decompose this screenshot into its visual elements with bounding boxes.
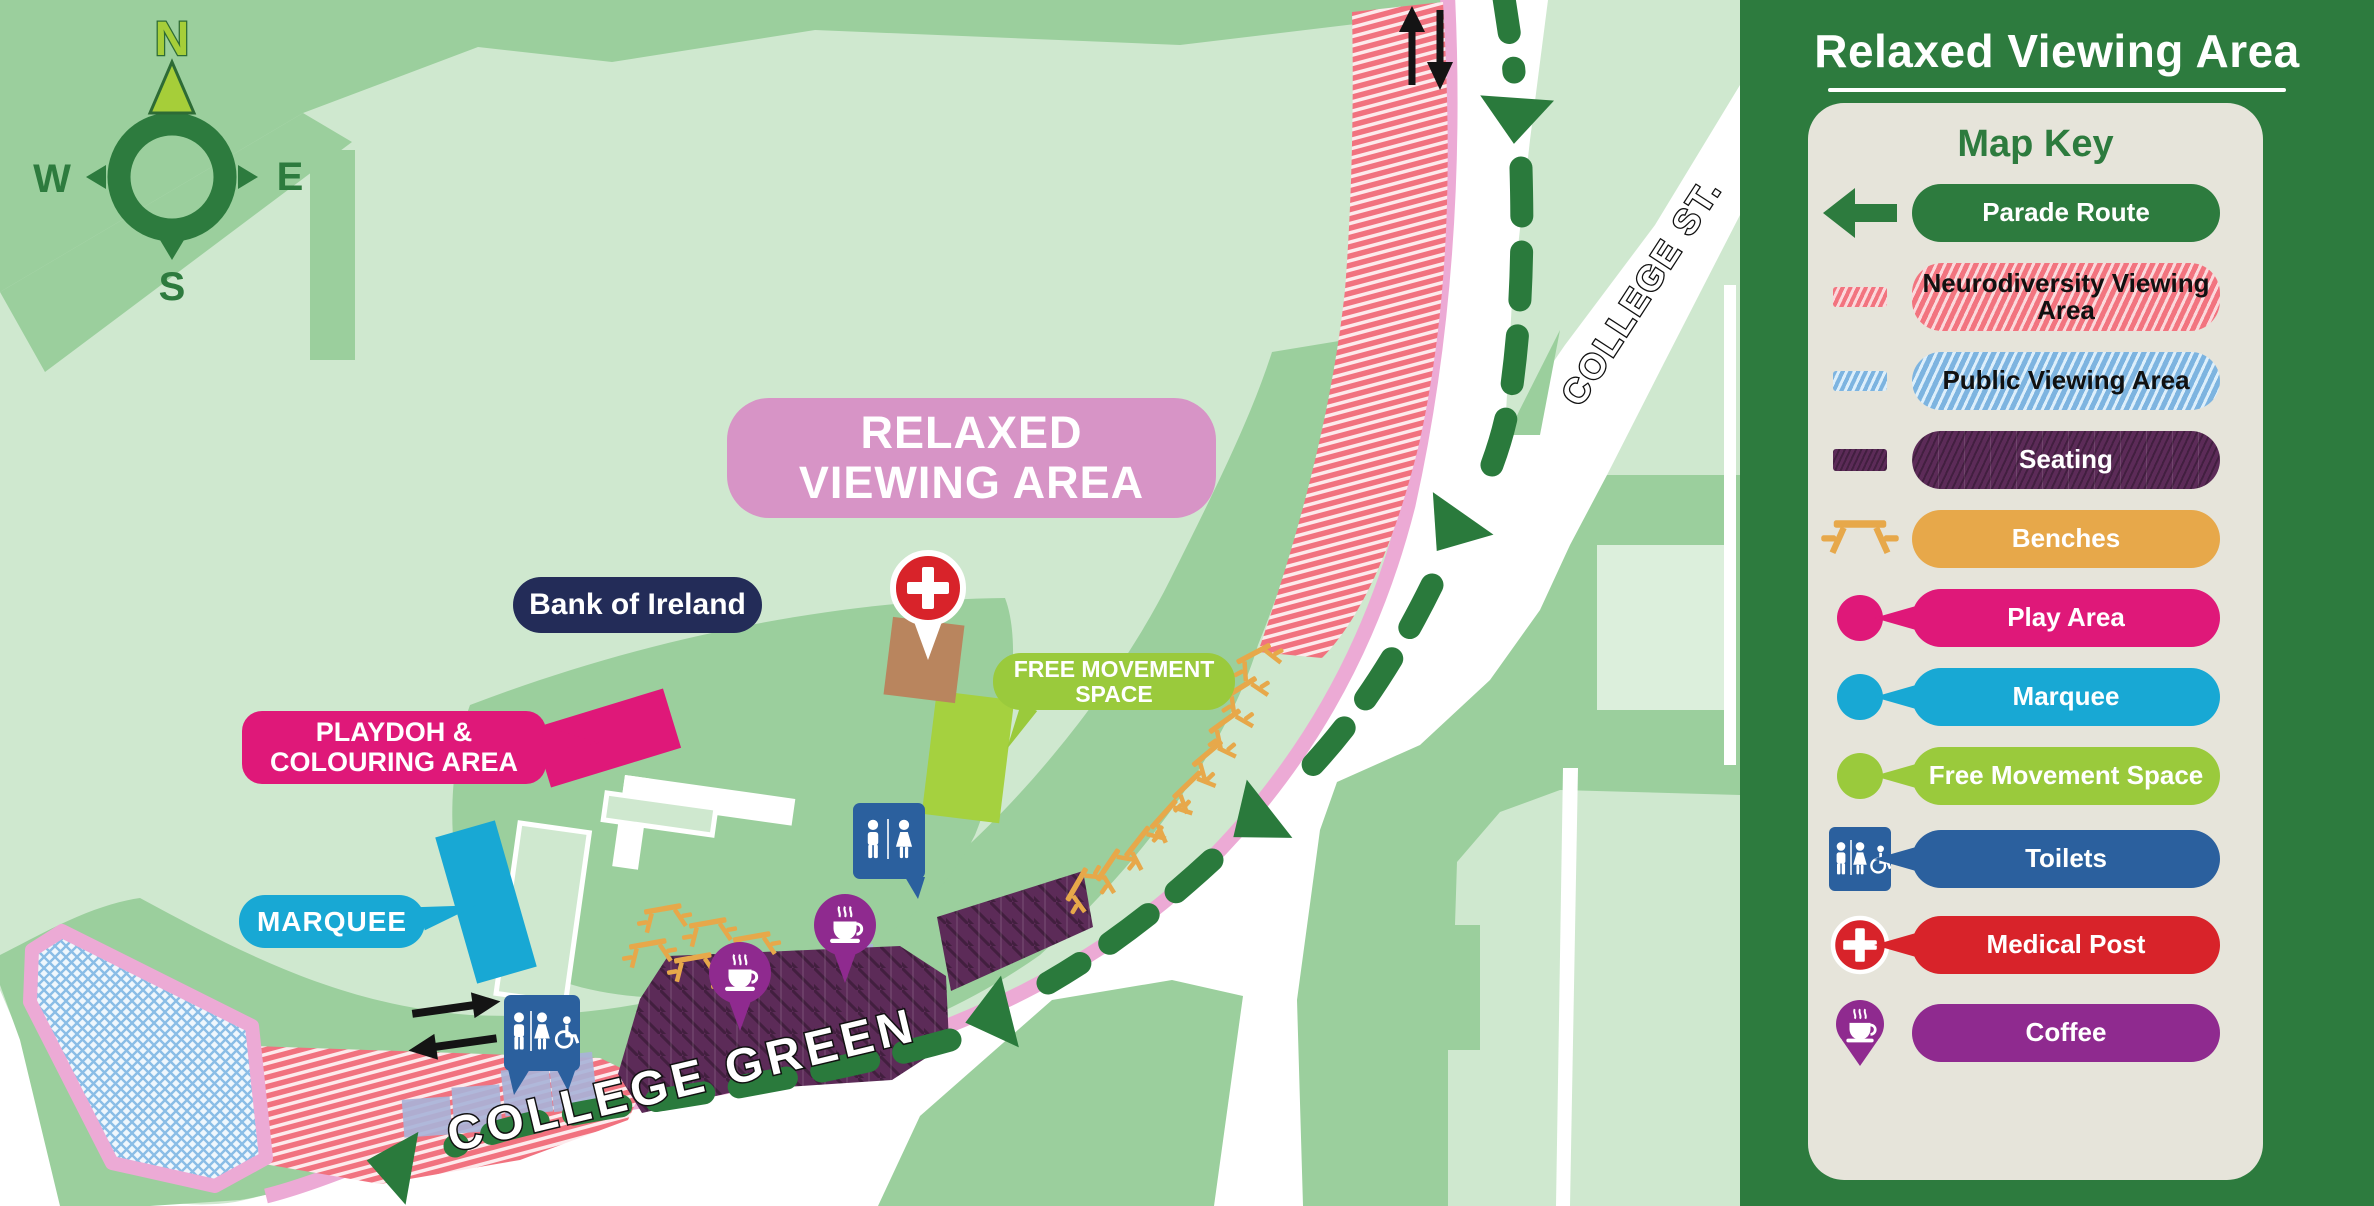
legend-row-parade-route: Parade Route xyxy=(1808,184,2263,242)
picnic-table-icon xyxy=(1808,512,1912,566)
legend-label: Play Area xyxy=(1912,589,2220,647)
legend-label: Seating xyxy=(1912,431,2220,489)
relaxed-viewing-area-label: RELAXED VIEWING AREA xyxy=(727,398,1216,518)
legend-label: Public Viewing Area xyxy=(1912,352,2220,410)
compass-w: W xyxy=(33,157,71,201)
legend-label: Free Movement Space xyxy=(1912,747,2220,805)
legend-row-free-movement: Free Movement Space xyxy=(1808,747,2263,805)
bank-of-ireland-label: Bank of Ireland xyxy=(513,577,762,633)
legend-row-marquee: Marquee xyxy=(1808,668,2263,726)
coffee-pin-icon xyxy=(1808,998,1912,1068)
blue-hatch-swatch xyxy=(1808,371,1912,391)
relaxed-viewing-area-map: COLLEGE GREEN COLLEGE ST. N W E S RELAXE… xyxy=(0,0,2374,1206)
compass-n: N xyxy=(155,13,190,66)
title-underline xyxy=(1828,88,2286,92)
free-movement-space xyxy=(922,691,1015,824)
legend-row-public-viewing: Public Viewing Area xyxy=(1808,352,2263,410)
side-street xyxy=(1724,285,1736,765)
southeast-pale-green xyxy=(1448,790,1740,1206)
legend-row-play-area: Play Area xyxy=(1808,589,2263,647)
map-canvas: COLLEGE GREEN COLLEGE ST. N W E S xyxy=(0,0,1740,1206)
legend-row-neurodiversity: Neurodiversity Viewing Area xyxy=(1808,263,2263,331)
playdoh-colouring-label: PLAYDOH & COLOURING AREA xyxy=(242,711,546,784)
legend-row-coffee: Coffee xyxy=(1808,998,2263,1068)
legend-row-medical-post: Medical Post xyxy=(1808,913,2263,977)
compass-e: E xyxy=(277,155,304,199)
parade-arrow-icon xyxy=(1808,185,1912,241)
legend-panel: Relaxed Viewing Area Map Key Parade Rout… xyxy=(1740,0,2374,1206)
map-key-title: Map Key xyxy=(1808,123,2263,166)
map-key-box: Map Key Parade Route Neurodiversity View… xyxy=(1808,103,2263,1180)
legend-label: Neurodiversity Viewing Area xyxy=(1912,263,2220,331)
legend-row-toilets: Toilets xyxy=(1808,826,2263,892)
pink-hatch-swatch xyxy=(1808,287,1912,307)
free-movement-space-label: FREE MOVEMENT SPACE xyxy=(993,653,1235,710)
building-footprint xyxy=(1597,545,1725,710)
legend-label: Marquee xyxy=(1912,668,2220,726)
legend-label: Toilets xyxy=(1912,830,2220,888)
legend-label: Medical Post xyxy=(1912,916,2220,974)
compass-s: S xyxy=(159,265,186,309)
legend-label: Coffee xyxy=(1912,1004,2220,1062)
legend-label: Parade Route xyxy=(1912,184,2220,242)
panel-title: Relaxed Viewing Area xyxy=(1777,24,2337,78)
legend-row-seating: Seating xyxy=(1808,431,2263,489)
legend-label: Benches xyxy=(1912,510,2220,568)
legend-row-benches: Benches xyxy=(1808,510,2263,568)
purple-swatch xyxy=(1808,449,1912,471)
marquee-label: MARQUEE xyxy=(239,895,425,948)
